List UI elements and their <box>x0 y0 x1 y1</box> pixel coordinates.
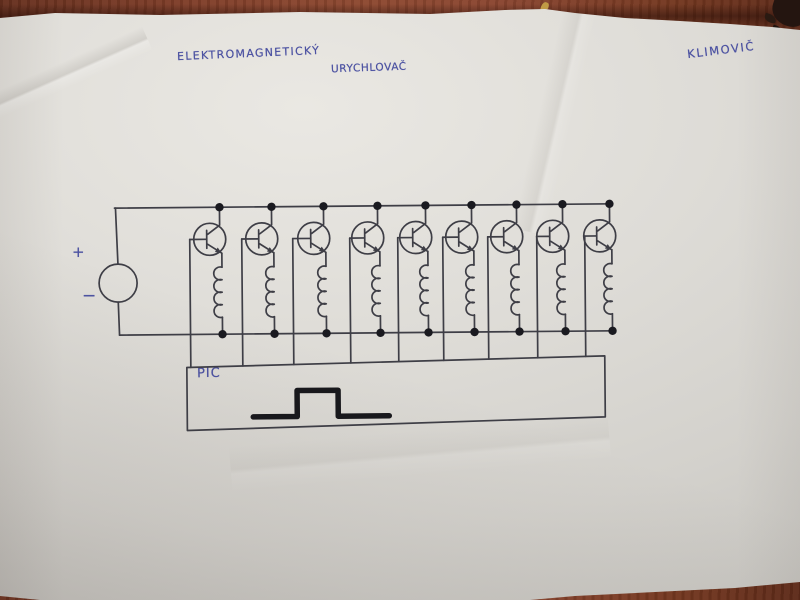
junction-dot-bottom <box>424 328 432 336</box>
base-wire-to-pic <box>190 239 191 367</box>
coil-symbol <box>318 266 327 317</box>
driver-stage-8 <box>536 200 570 358</box>
source-top-lead <box>115 208 117 264</box>
junction-dot-bottom <box>322 329 330 337</box>
coil-symbol <box>214 267 223 318</box>
coil-symbol <box>557 264 566 315</box>
junction-dot-top <box>512 200 520 208</box>
collector-lead <box>207 207 219 234</box>
schematic-ink <box>98 200 617 432</box>
source-bottom-lead <box>118 302 119 335</box>
junction-dot-top <box>267 203 275 211</box>
driver-stage-5 <box>397 201 433 361</box>
base-wire-to-pic <box>242 239 243 366</box>
coil-symbol <box>604 264 613 315</box>
base-wire-to-pic <box>293 239 294 365</box>
junction-dot-bottom <box>561 327 569 335</box>
driver-stage-4 <box>349 202 385 363</box>
junction-dot-bottom <box>376 329 384 337</box>
circuit-schematic <box>0 0 800 600</box>
coil-symbol <box>372 266 381 317</box>
coil-symbol <box>511 264 520 315</box>
collector-lead <box>504 205 516 232</box>
junction-dot-top <box>373 202 381 210</box>
driver-stage-6 <box>442 201 479 361</box>
driver-stage-3 <box>292 202 331 364</box>
junction-dot-bottom <box>608 327 616 335</box>
pulse-waveform-icon <box>253 390 389 417</box>
bottom-rail <box>120 331 614 335</box>
collector-lead <box>413 205 425 232</box>
dc-source-symbol <box>98 208 137 335</box>
junction-dot-bottom <box>515 327 523 335</box>
junction-dot-top <box>421 201 429 209</box>
junction-dot-bottom <box>270 330 278 338</box>
junction-dot-bottom <box>218 330 226 338</box>
driver-stage-2 <box>241 203 279 366</box>
junction-dot-top <box>558 200 566 208</box>
top-rail <box>114 204 612 208</box>
coil-symbol <box>466 265 475 316</box>
coil-symbol <box>266 267 275 318</box>
driver-stage-1 <box>189 203 227 367</box>
driver-stage-7 <box>487 200 524 359</box>
coil-symbol <box>420 265 429 316</box>
collector-lead <box>459 205 471 232</box>
junction-dot-top <box>605 200 613 208</box>
base-wire-to-pic <box>350 238 351 363</box>
collector-lead <box>597 204 609 231</box>
collector-lead <box>365 206 377 233</box>
base-wire-to-pic <box>443 237 444 360</box>
collector-lead <box>259 207 271 234</box>
base-wire-to-pic <box>488 237 489 359</box>
collector-lead <box>311 206 323 233</box>
collector-lead <box>550 204 562 231</box>
base-wire-to-pic <box>398 238 399 362</box>
pic-box <box>187 356 606 431</box>
driver-stage-9 <box>583 200 617 357</box>
junction-dot-bottom <box>470 328 478 336</box>
base-wire-to-pic <box>537 236 538 357</box>
junction-dot-top <box>215 203 223 211</box>
base-wire-to-pic <box>585 236 586 356</box>
dc-source-circle <box>99 264 137 302</box>
photo-scene: ELEKTROMAGNETICKÝ URYCHLOVAČ KLIMOVIČ + … <box>0 0 800 600</box>
junction-dot-top <box>467 201 475 209</box>
paper-sheet: ELEKTROMAGNETICKÝ URYCHLOVAČ KLIMOVIČ + … <box>0 0 800 600</box>
junction-dot-top <box>319 202 327 210</box>
